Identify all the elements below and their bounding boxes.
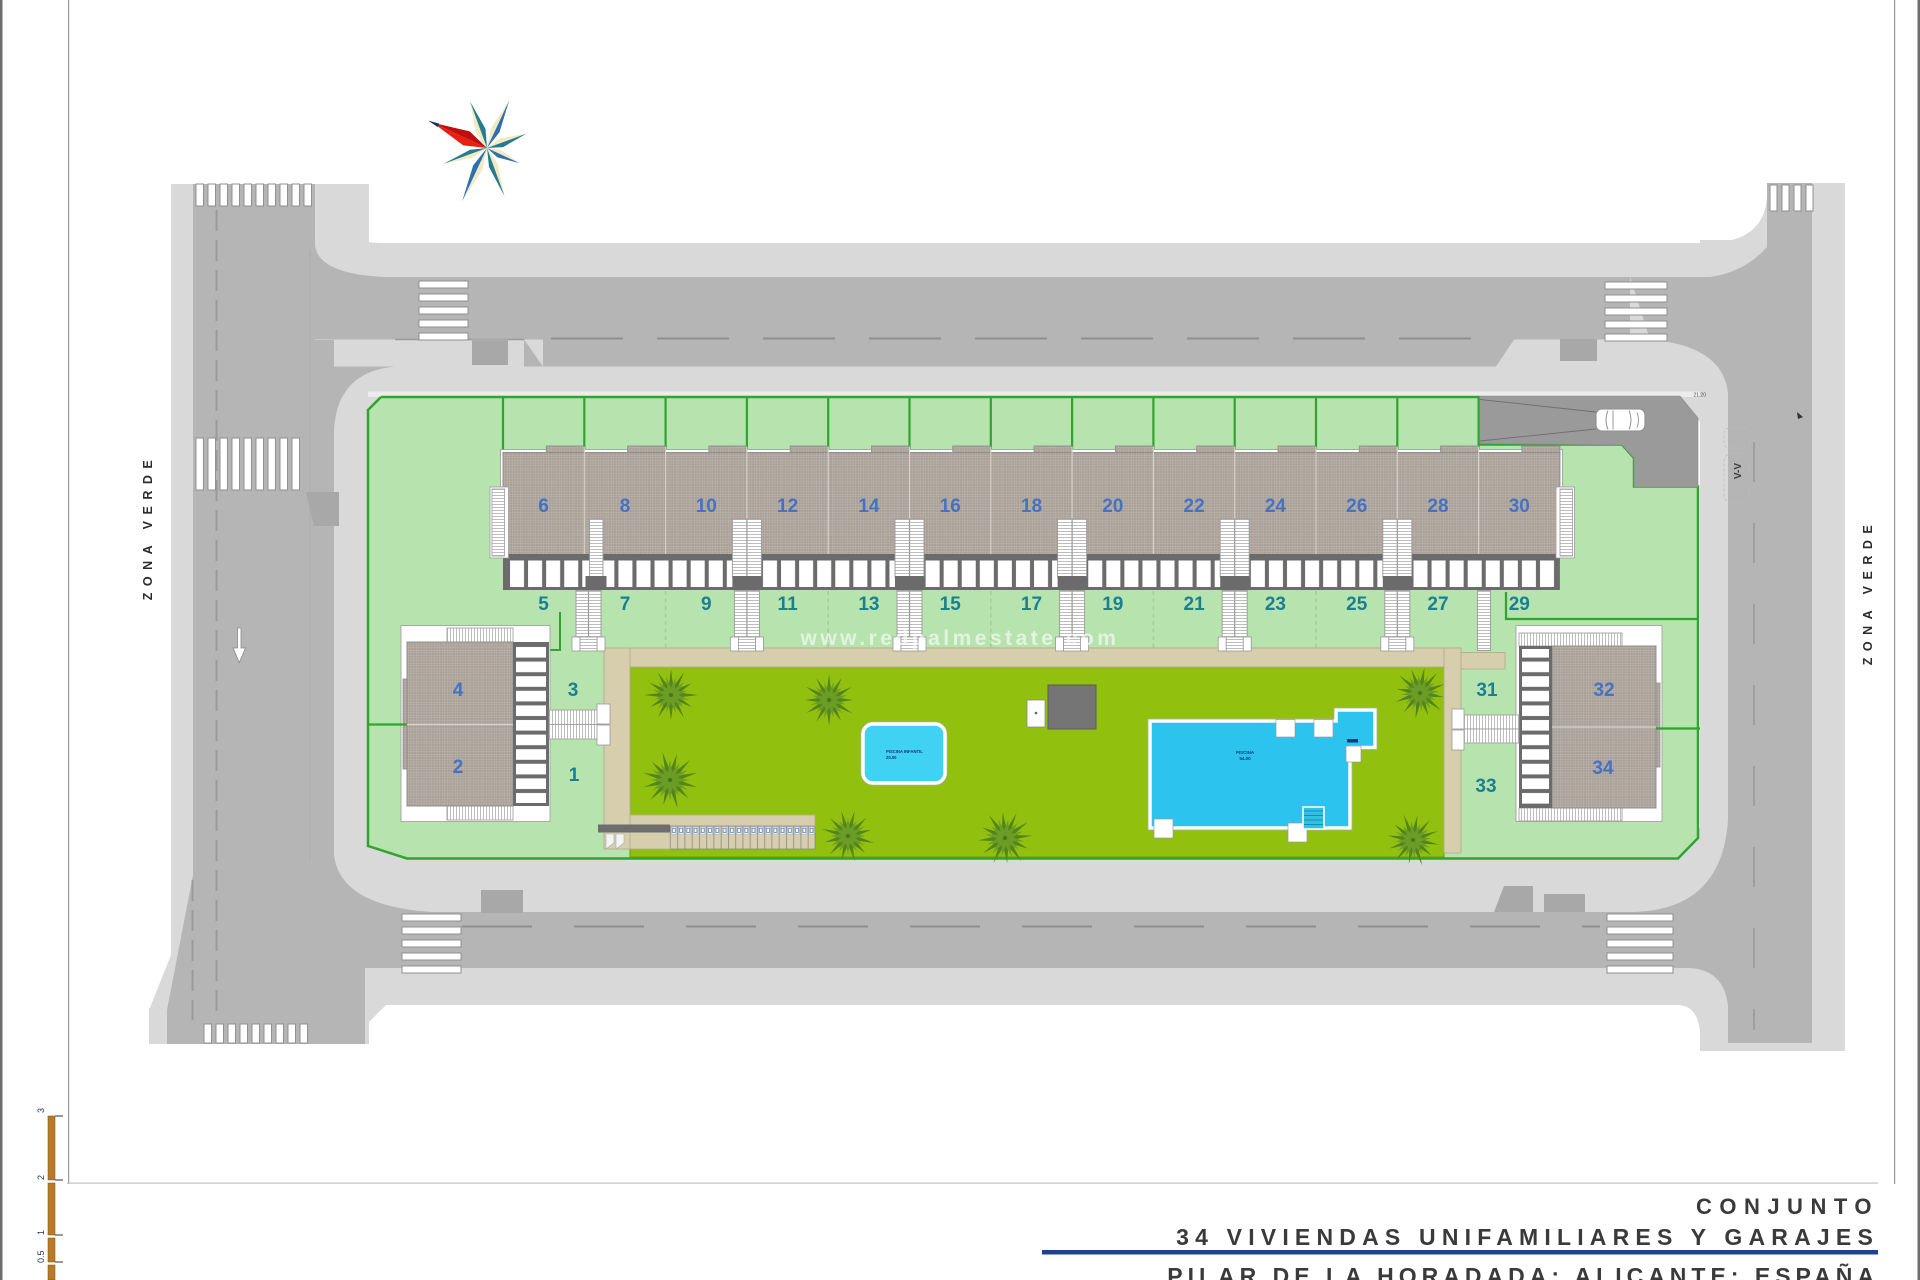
svg-text:34 VIVIENDAS UNIFAMILIARES Y G: 34 VIVIENDAS UNIFAMILIARES Y GARAJES — [1176, 1224, 1879, 1250]
svg-text:19: 19 — [1102, 594, 1123, 615]
svg-text:8: 8 — [620, 496, 631, 517]
svg-text:54.00: 54.00 — [1239, 756, 1251, 761]
svg-text:PISCINA: PISCINA — [1236, 750, 1255, 755]
svg-text:29: 29 — [1509, 594, 1530, 615]
svg-text:25: 25 — [1346, 594, 1368, 615]
svg-text:11: 11 — [778, 594, 799, 615]
svg-text:1: 1 — [569, 765, 580, 786]
svg-text:4: 4 — [453, 680, 464, 701]
svg-text:21: 21 — [1184, 594, 1206, 615]
svg-text:20: 20 — [1102, 496, 1123, 517]
svg-text:13: 13 — [858, 594, 879, 615]
svg-text:5: 5 — [538, 594, 549, 615]
svg-text:30: 30 — [1509, 496, 1530, 517]
svg-text:ZONA VERDE: ZONA VERDE — [141, 454, 155, 601]
svg-text:9: 9 — [701, 594, 712, 615]
svg-text:0.5: 0.5 — [36, 1250, 46, 1263]
svg-text:22: 22 — [1184, 496, 1205, 517]
svg-text:33: 33 — [1475, 776, 1496, 797]
svg-text:3: 3 — [568, 680, 579, 701]
svg-text:V-V: V-V — [1733, 463, 1744, 479]
svg-text:10: 10 — [696, 496, 717, 517]
svg-text:32: 32 — [1593, 680, 1614, 701]
svg-text:3: 3 — [36, 1108, 46, 1113]
svg-text:26: 26 — [1346, 496, 1367, 517]
svg-text:24: 24 — [1265, 496, 1287, 517]
svg-text:CONJUNTO: CONJUNTO — [1696, 1194, 1879, 1219]
svg-text:16: 16 — [940, 496, 961, 517]
svg-text:PILAR DE LA HORADADA; ALICANTE: PILAR DE LA HORADADA; ALICANTE; ESPAÑA — [1167, 1262, 1879, 1280]
svg-text:1: 1 — [36, 1230, 46, 1235]
svg-text:7: 7 — [620, 594, 631, 615]
svg-text:17: 17 — [1021, 594, 1042, 615]
svg-text:31: 31 — [1476, 680, 1498, 701]
svg-text:2: 2 — [453, 757, 464, 778]
svg-text:21.20: 21.20 — [1693, 393, 1706, 399]
svg-text:14: 14 — [858, 496, 880, 517]
svg-text:2: 2 — [36, 1175, 46, 1180]
svg-text:12: 12 — [777, 496, 798, 517]
svg-text:27: 27 — [1427, 594, 1448, 615]
svg-text:18: 18 — [1021, 496, 1042, 517]
svg-text:28: 28 — [1427, 496, 1448, 517]
svg-text:PISCINA INFANTIL: PISCINA INFANTIL — [886, 749, 923, 754]
svg-text:www.redpalmestate.com: www.redpalmestate.com — [800, 627, 1120, 650]
svg-text:23: 23 — [1265, 594, 1286, 615]
svg-text:6: 6 — [538, 496, 549, 517]
svg-text:15: 15 — [940, 594, 962, 615]
svg-text:20.00: 20.00 — [886, 755, 897, 760]
svg-text:34: 34 — [1592, 758, 1614, 779]
svg-text:ZONA VERDE: ZONA VERDE — [1861, 519, 1875, 666]
